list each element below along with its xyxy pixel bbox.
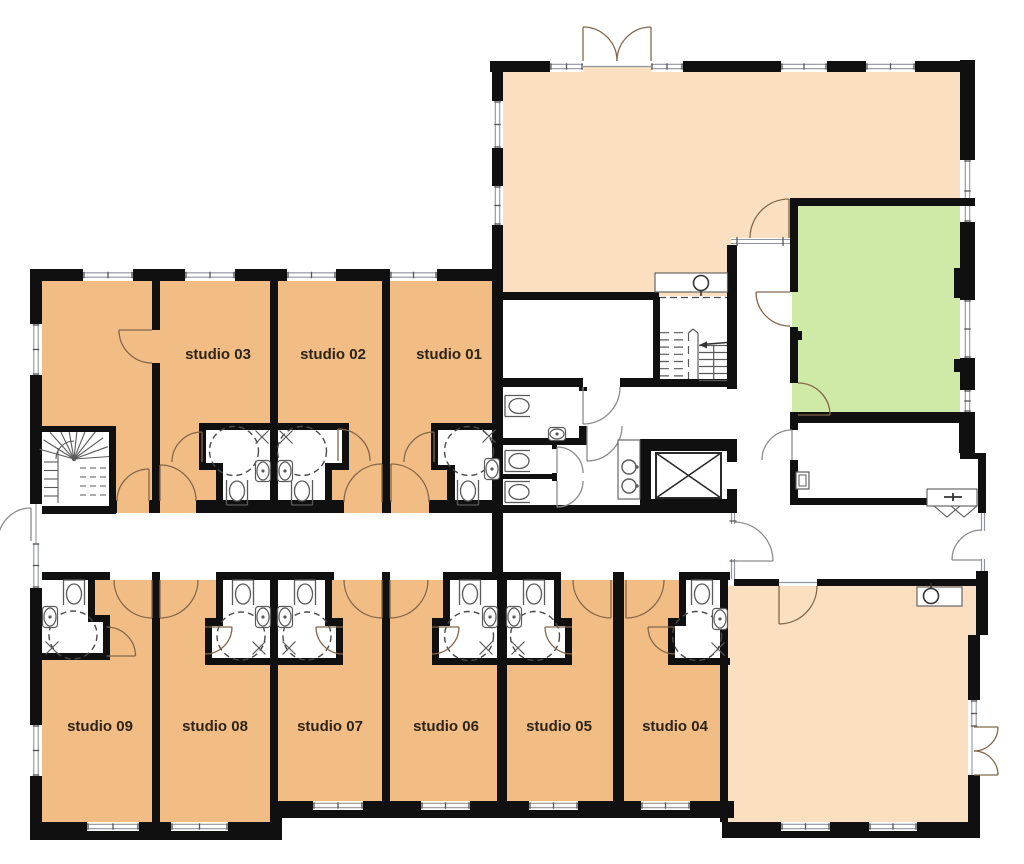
svg-text:studio 09: studio 09 — [67, 718, 133, 735]
svg-text:studio 03: studio 03 — [185, 346, 251, 363]
svg-text:studio 08: studio 08 — [182, 718, 248, 735]
svg-text:studio 04: studio 04 — [642, 718, 709, 735]
svg-text:studio 02: studio 02 — [300, 346, 366, 363]
svg-text:studio 06: studio 06 — [413, 718, 479, 735]
svg-text:studio 07: studio 07 — [297, 718, 363, 735]
svg-text:studio 01: studio 01 — [416, 346, 482, 363]
svg-text:studio 05: studio 05 — [526, 718, 592, 735]
